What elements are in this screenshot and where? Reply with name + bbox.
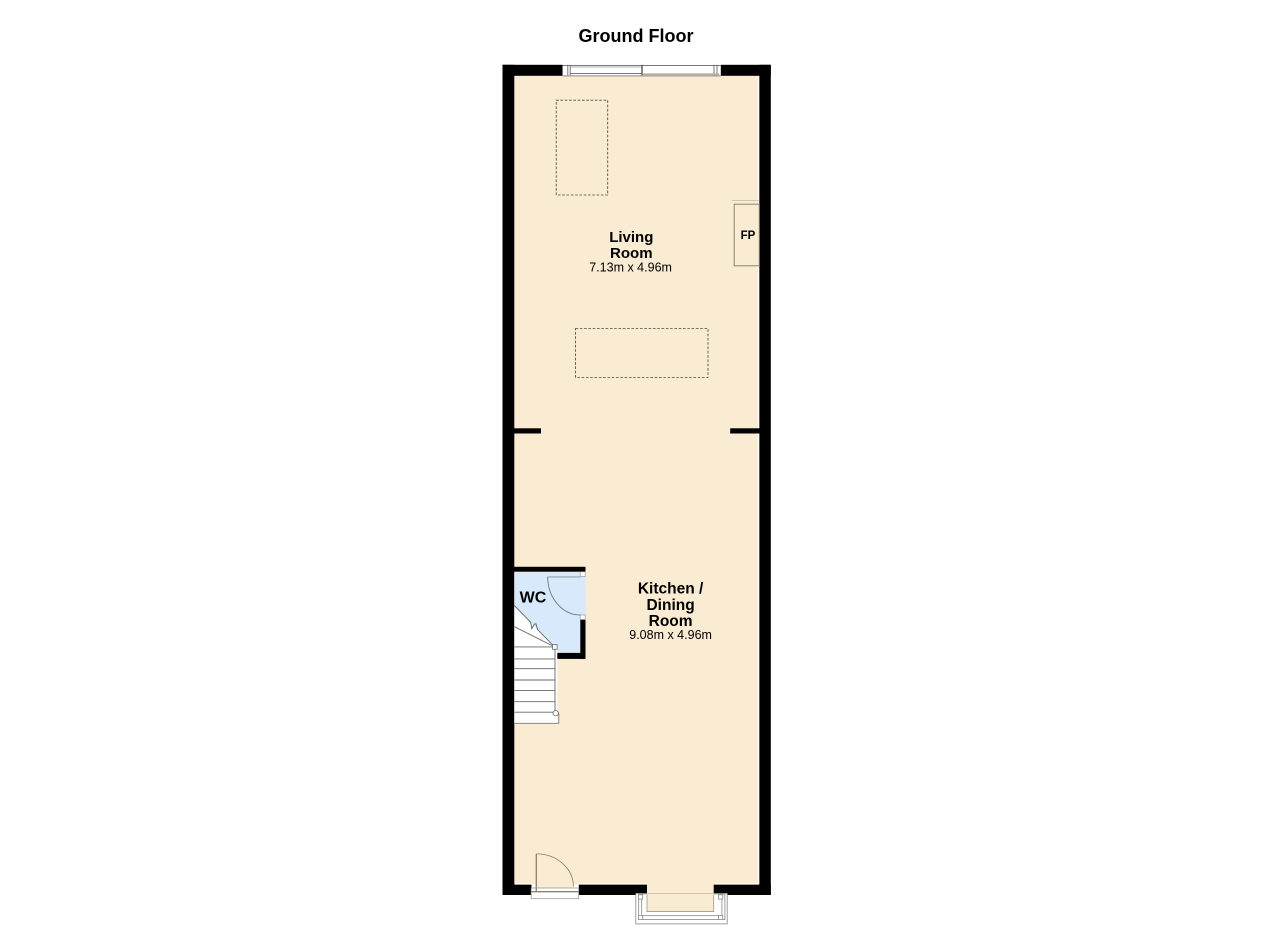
svg-text:Dining: Dining: [646, 597, 694, 614]
svg-text:WC: WC: [520, 589, 547, 606]
svg-text:9.08m x 4.96m: 9.08m x 4.96m: [629, 628, 712, 642]
svg-text:Kitchen /: Kitchen /: [638, 581, 704, 598]
svg-text:Ground Floor: Ground Floor: [579, 26, 694, 46]
svg-text:7.13m x 4.96m: 7.13m x 4.96m: [589, 261, 672, 275]
svg-text:Living: Living: [609, 229, 653, 246]
svg-text:Room: Room: [610, 245, 653, 262]
svg-text:FP: FP: [741, 230, 756, 242]
